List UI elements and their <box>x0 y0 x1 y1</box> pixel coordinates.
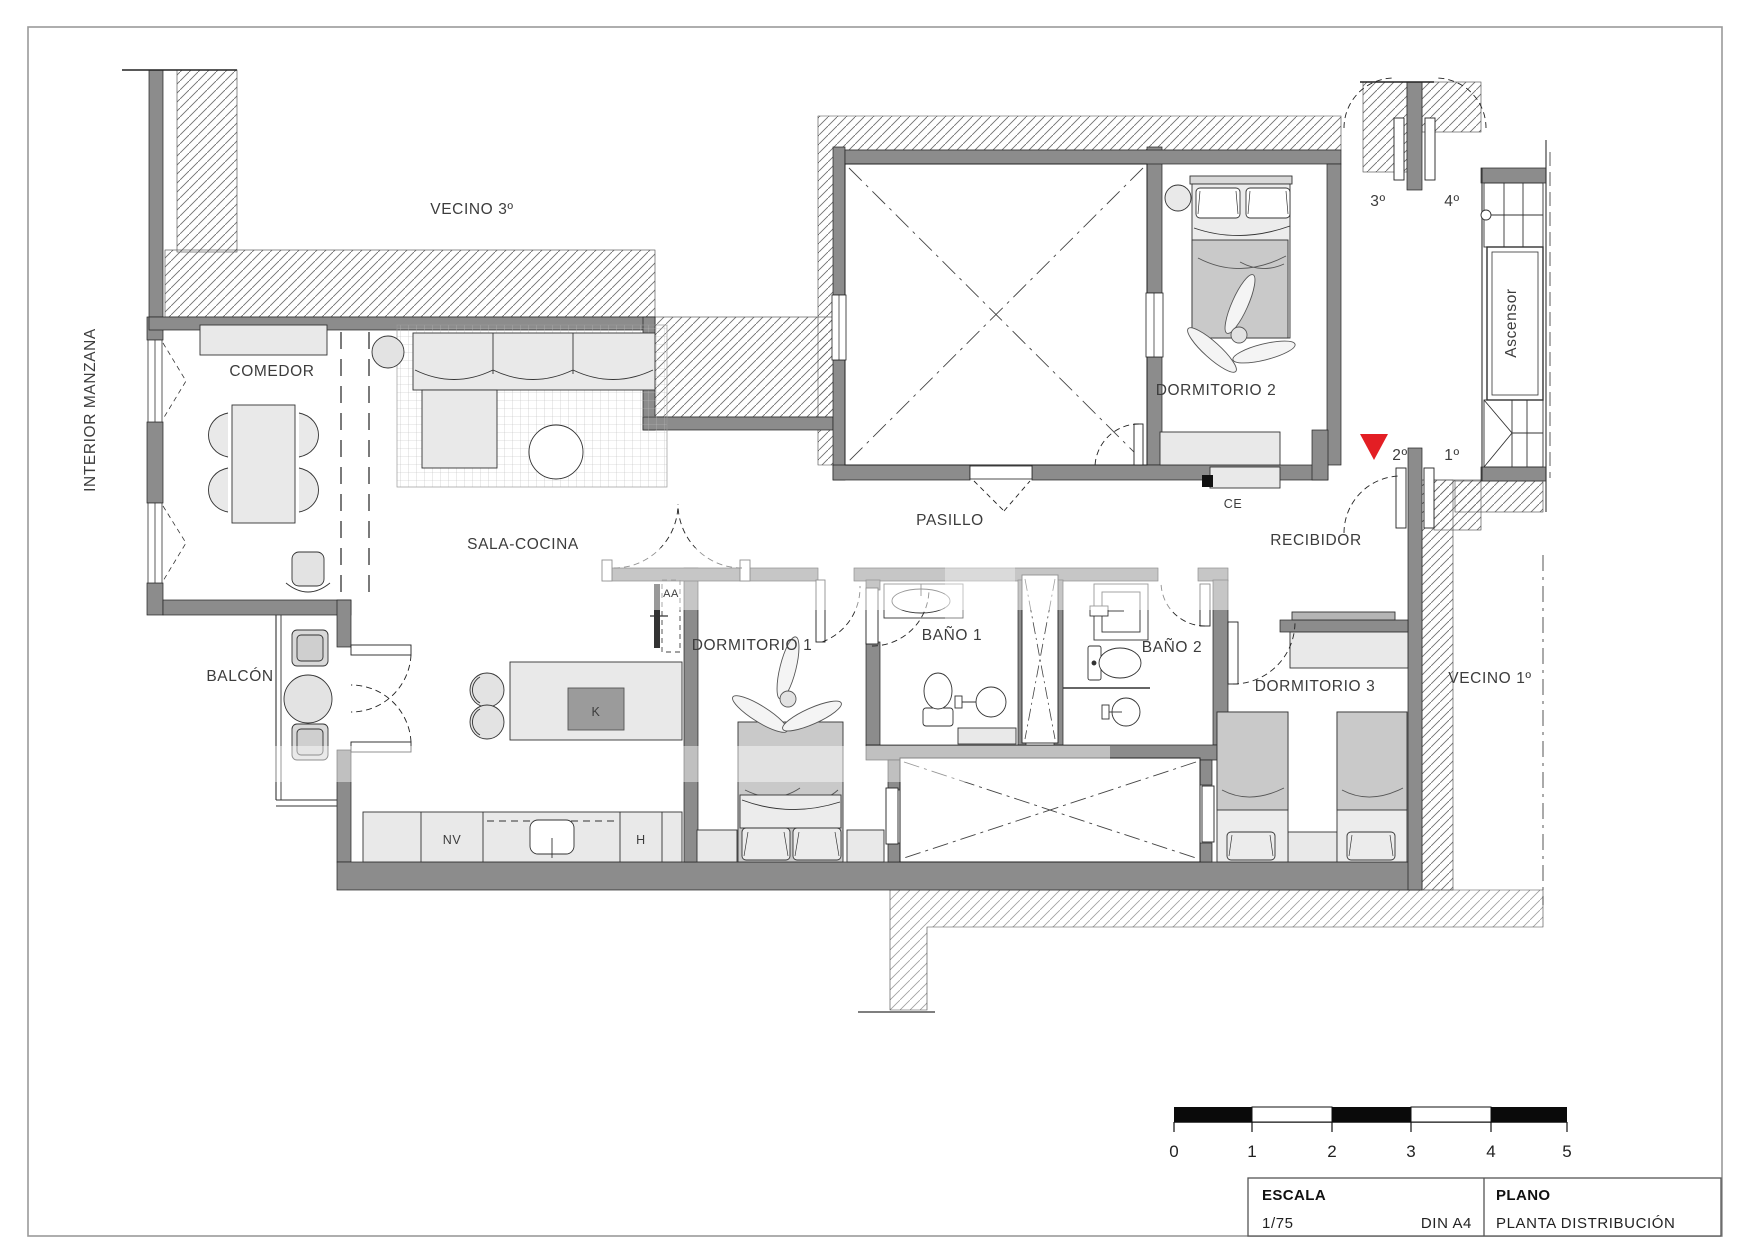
label-bano-1: BAÑO 1 <box>922 627 982 644</box>
label-dormitorio-1: DORMITORIO 1 <box>692 637 813 654</box>
bedroom1-furniture <box>697 722 884 862</box>
kitchen-island <box>470 662 682 740</box>
title-block-plano-heading: PLANO <box>1496 1187 1551 1204</box>
label-ce: CE <box>1224 497 1243 511</box>
label-neighbor-3: VECINO 3º <box>430 201 513 218</box>
electrical-cabinet <box>1202 467 1280 488</box>
label-ascensor: Ascensor <box>1503 288 1520 357</box>
floor-plan-sheet: VECINO 3º INTERIOR MANZANA COMEDOR SALA-… <box>0 0 1755 1240</box>
dining-living-dashed-separation <box>341 332 369 600</box>
label-nv: NV <box>443 833 462 847</box>
label-aa: AA <box>663 588 679 600</box>
kitchen-counter <box>363 812 682 862</box>
label-sala-cocina: SALA-COCINA <box>467 536 579 553</box>
label-dormitorio-3: DORMITORIO 3 <box>1255 678 1376 695</box>
label-interior-manzana: INTERIOR MANZANA <box>82 328 99 492</box>
scale-tick-0: 0 <box>1169 1142 1178 1161</box>
title-block-plan-name: PLANTA DISTRIBUCIÓN <box>1496 1215 1675 1232</box>
scale-tick-1: 1 <box>1247 1142 1256 1161</box>
label-recibidor: RECIBIDOR <box>1270 532 1362 549</box>
scale-tick-2: 2 <box>1327 1142 1336 1161</box>
bedroom3-furniture <box>1217 612 1408 862</box>
label-floor-1: 1º <box>1444 447 1459 464</box>
scale-tick-4: 4 <box>1486 1142 1495 1161</box>
label-neighbor-1: VECINO 1º <box>1448 670 1531 687</box>
patio-lightwell <box>832 164 1163 511</box>
title-block-paper-size: DIN A4 <box>1421 1215 1472 1232</box>
label-pasillo: PASILLO <box>916 512 984 529</box>
scale-tick-3: 3 <box>1406 1142 1415 1161</box>
scale-tick-5: 5 <box>1562 1142 1571 1161</box>
label-floor-2: 2º <box>1392 447 1407 464</box>
living-area <box>372 325 667 487</box>
label-dormitorio-2: DORMITORIO 2 <box>1156 382 1277 399</box>
label-h: H <box>636 833 646 847</box>
title-block-escala-heading: ESCALA <box>1262 1187 1326 1204</box>
label-k: K <box>592 705 601 719</box>
scale-bar: 0 1 2 3 4 5 <box>1169 1107 1571 1161</box>
current-floor-marker <box>1360 434 1388 460</box>
label-floor-4: 4º <box>1444 193 1459 210</box>
label-bano-2: BAÑO 2 <box>1142 639 1202 656</box>
balcony-french-doors <box>351 645 411 752</box>
floor-plan-drawing: VECINO 3º INTERIOR MANZANA COMEDOR SALA-… <box>0 0 1755 1240</box>
label-comedor: COMEDOR <box>229 363 314 380</box>
label-floor-3: 3º <box>1370 193 1385 210</box>
label-balcon: BALCÓN <box>206 668 273 685</box>
title-block-scale-value: 1/75 <box>1262 1215 1294 1232</box>
title-block: ESCALA 1/75 DIN A4 PLANO PLANTA DISTRIBU… <box>1248 1178 1721 1236</box>
